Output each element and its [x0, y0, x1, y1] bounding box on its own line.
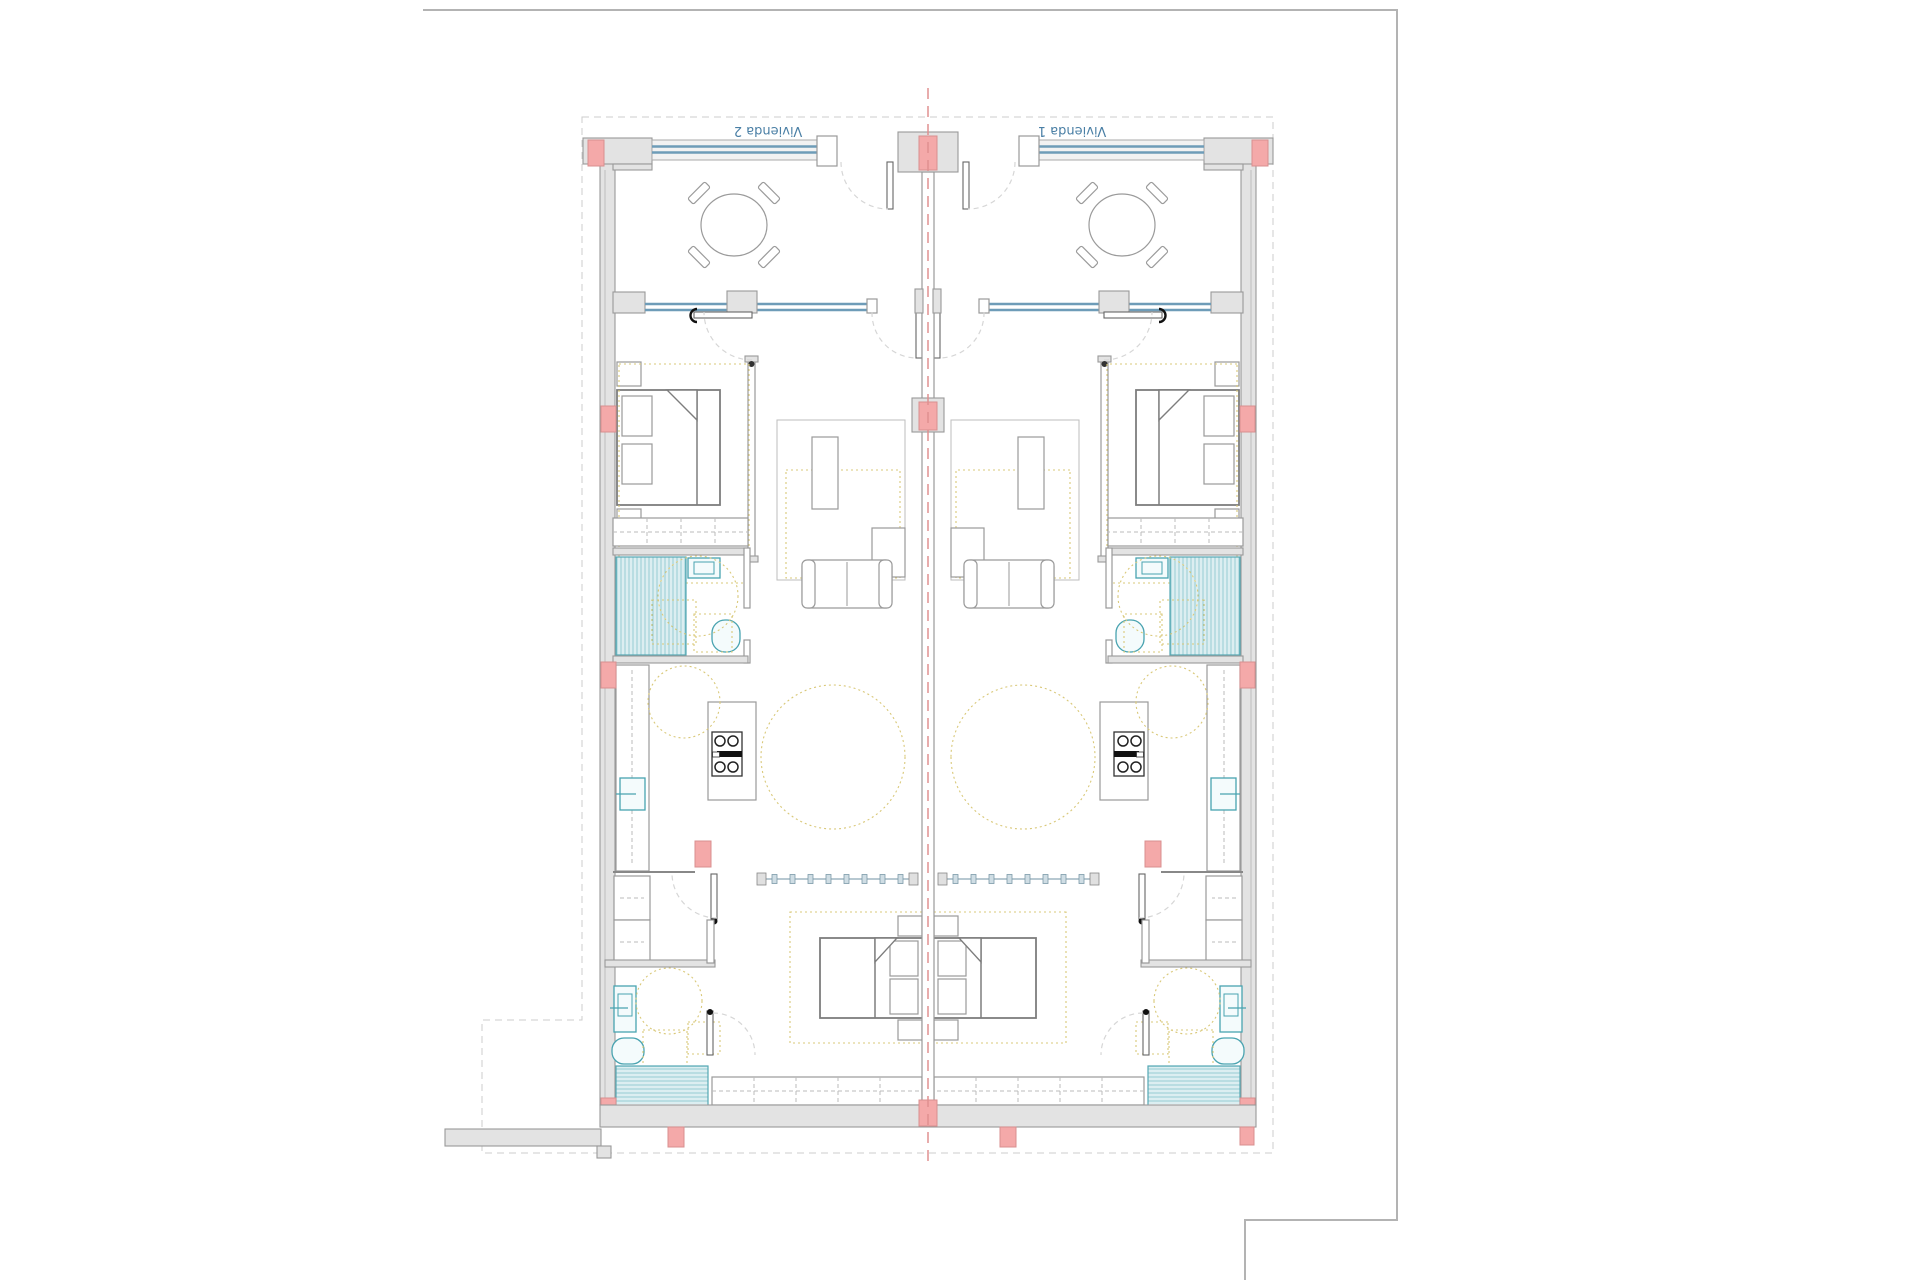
column [1240, 1127, 1254, 1145]
neighbor-wall-stub [445, 1129, 601, 1146]
unit-vivienda-1 [933, 136, 1273, 1124]
unit-vivienda-2 [583, 136, 923, 1124]
column [1000, 1127, 1016, 1147]
floor-plan-canvas: Vivienda 2 Vivienda 1 [0, 0, 1920, 1280]
unit-label-vivienda-2: Vivienda 2 [734, 123, 802, 138]
unit-label-vivienda-1: Vivienda 1 [1038, 123, 1106, 138]
bottom-facade-wall [445, 1100, 1256, 1158]
drawing-page: Vivienda 2 Vivienda 1 [0, 0, 1920, 1280]
column [668, 1127, 684, 1147]
